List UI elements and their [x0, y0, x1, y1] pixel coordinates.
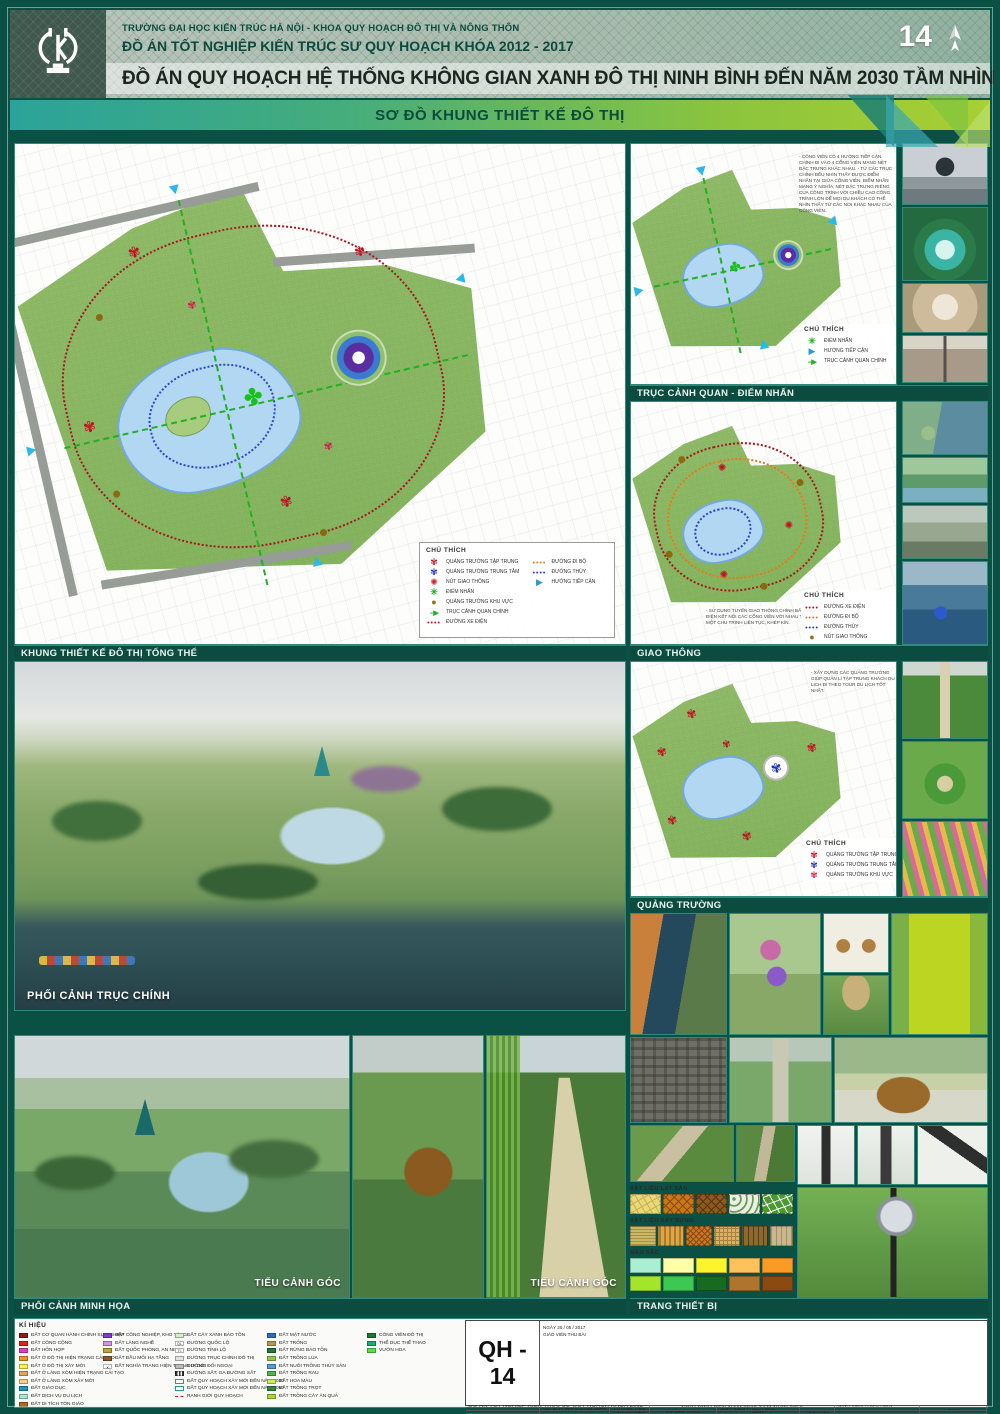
symbol-swatch [367, 1348, 376, 1353]
photo-lantern-lamp [797, 1125, 855, 1185]
landmark-cone [314, 746, 330, 776]
legend-icon [426, 578, 442, 587]
symbol-swatch [103, 1333, 112, 1338]
legend-icon [806, 861, 822, 870]
header-band: TRƯỜNG ĐẠI HỌC KIẾN TRÚC HÀ NỘI - KHOA Q… [10, 10, 990, 98]
legend-item: TRỤC CẢNH QUAN CHÍNH [804, 356, 892, 366]
traffic-map: ✺ ✺ ✺ - SỬ DỤNG TUYẾN GIAO THÔNG CHÍNH B… [630, 401, 897, 645]
legend-item: ĐƯỜNG THỦY [531, 567, 608, 577]
symbol-swatch [267, 1379, 276, 1384]
course-line: ĐỒ ÁN TỐT NGHIỆP KIẾN TRÚC SƯ QUY HOẠCH … [122, 38, 574, 54]
symbol-item: ĐẤT HOA MÀU [267, 1378, 346, 1386]
symbol-swatch [267, 1333, 276, 1338]
junction-marker: ✺ [717, 463, 727, 475]
legend-icon [426, 588, 442, 597]
photo-lamp-path [729, 1037, 832, 1123]
color-swatch [762, 1276, 793, 1291]
section-bar-equipment: TRANG THIẾT BỊ [630, 1298, 988, 1314]
section-label: PHỐI CẢNH MINH HỌA [21, 1301, 130, 1312]
building-label: VẬT LIỆU XÂY DỰNG [630, 1218, 694, 1224]
symbol-swatch [175, 1348, 184, 1353]
legend-item: QUẢNG TRƯỜNG TRUNG TÂM [806, 860, 894, 870]
legend-icon [804, 337, 820, 346]
building-swatch-4 [714, 1226, 740, 1246]
perspective-label: PHỐI CẢNH TRỤC CHÍNH [27, 990, 170, 1002]
photo-exercise-equipment [823, 913, 889, 973]
legend-icon [806, 851, 822, 860]
photo-plaza-fountain [902, 283, 988, 333]
master-plan-map: ✤ ✾ ✾ ✾ ✾ ✾ ✾ CHÚ THÍCH QUẢNG TRƯỜNG TẬP… [14, 143, 626, 645]
corner-scene-walkway: TIỂU CẢNH GÓC [486, 1035, 626, 1298]
color-swatch [696, 1258, 727, 1273]
master-legend: CHÚ THÍCH QUẢNG TRƯỜNG TẬP TRUNGQUẢNG TR… [419, 542, 615, 638]
legend-item: ĐIỂM NHẤN [426, 587, 525, 597]
color-swatch [762, 1258, 793, 1273]
symbol-item: THỂ DỤC THỂ THAO [367, 1340, 426, 1348]
legend-item: HƯỚNG TIẾP CẬN [804, 346, 892, 356]
symbol-swatch [103, 1364, 112, 1369]
tree-cluster [52, 801, 142, 841]
legend-icon [426, 568, 442, 577]
square-marker: ✾ [741, 829, 753, 843]
legend-item: ĐƯỜNG THỦY [804, 622, 892, 632]
photo-statue [902, 143, 988, 205]
illustration-render: TIỂU CẢNH GÓC [14, 1035, 350, 1298]
legend-icon [531, 558, 547, 567]
sheet-number: 14 [899, 20, 932, 54]
building-swatch-3 [686, 1226, 712, 1246]
tree-cluster [229, 1140, 319, 1178]
color-swatch [630, 1258, 661, 1273]
section-label: TRỤC CẢNH QUAN - ĐIỂM NHẤN [637, 388, 794, 399]
section-bar-illustration: PHỐI CẢNH MINH HỌA [14, 1298, 626, 1314]
photo-stone-house [630, 1037, 727, 1123]
section-bar-axis: TRỤC CẢNH QUAN - ĐIỂM NHẤN [630, 385, 988, 400]
axis-note: - CÔNG VIÊN CÓ 4 HƯỚNG TIẾP CẬN CHÍNH ĐI… [799, 154, 893, 214]
photo-bollard-lamp [857, 1125, 915, 1185]
building-swatch-6 [770, 1226, 793, 1246]
photo-garden-path-1 [630, 1125, 734, 1182]
symbol-item: VƯỜN HOA [367, 1347, 426, 1355]
photo-boulevard [902, 661, 988, 739]
photo-gazebo [823, 975, 889, 1035]
squares-legend: CHÚ THÍCH QUẢNG TRƯỜNG TẬP TRUNGQUẢNG TR… [803, 838, 897, 882]
symbol-swatch [367, 1341, 376, 1346]
paving-swatch-5 [762, 1194, 793, 1214]
color-swatch [663, 1258, 694, 1273]
titleblock-date-cell: NGÀY 20 / 05 / 2017 GIÁO VIÊN THU BÀI [540, 1321, 610, 1405]
symbols-title: KÍ HIỆU [19, 1322, 46, 1329]
photo-arm-lamp [917, 1125, 988, 1185]
legend-item: NÚT GIAO THÔNG [804, 632, 892, 642]
symbol-swatch [175, 1379, 184, 1384]
section-bar-squares: QUẢNG TRƯỜNG [630, 897, 988, 912]
junction-marker: ✺ [719, 570, 729, 582]
symbol-item: CÔNG VIÊN ĐÔ THỊ [367, 1332, 426, 1340]
banner: SƠ ĐỒ KHUNG THIẾT KẾ ĐÔ THỊ [10, 100, 990, 130]
axis-map: ✤ - CÔNG VIÊN CÓ 4 HƯỚNG TIẾP CẬN CHÍNH … [630, 143, 897, 385]
photo-flower-parterre [902, 821, 988, 897]
square-marker: ✾ [806, 741, 818, 755]
legend-col-left: QUẢNG TRƯỜNG TẬP TRUNGQUẢNG TRƯỜNG TRUNG… [426, 557, 525, 627]
legend-item: HƯỚNG TIẾP CẬN [531, 577, 608, 587]
photo-canal-benches [630, 913, 727, 1035]
squares-map: ✾ ✾ ✾ ✾ ✾ ✾ ✾ - XÂY DỰNG CÁC QUẢNG TRƯỜN… [630, 661, 897, 897]
square-marker: ✾ [685, 707, 697, 721]
paving-swatch-3 [696, 1194, 727, 1214]
access-arrow [311, 556, 323, 567]
section-label: QUẢNG TRƯỜNG [637, 900, 722, 911]
symbol-swatch [175, 1364, 184, 1369]
corner-label-right: TIỂU CẢNH GÓC [531, 1278, 618, 1289]
symbol-swatch [267, 1394, 276, 1399]
flower-trees [351, 766, 421, 792]
section-label: KHUNG THIẾT KẾ ĐÔ THỊ TỔNG THỂ [21, 648, 197, 659]
photo-garden-path-2 [736, 1125, 795, 1182]
access-arrow [633, 285, 644, 297]
symbol-swatch [267, 1348, 276, 1353]
section-label: TRANG THIẾT BỊ [637, 1301, 717, 1312]
symbol-swatch [19, 1386, 28, 1391]
symbol-swatch [175, 1371, 184, 1376]
photo-roundabout [902, 741, 988, 819]
square-marker: ✾ [666, 813, 678, 827]
sheet-code: QH - 14 [466, 1321, 540, 1405]
section-bar-traffic: GIAO THÔNG [630, 645, 988, 660]
legend-icon [531, 568, 547, 577]
access-arrow [826, 216, 837, 228]
corner-scene-dome [352, 1035, 484, 1298]
color-swatch [696, 1276, 727, 1291]
photo-electric-carts [902, 505, 988, 559]
project-title: ĐỒ ÁN QUY HOẠCH HỆ THỐNG KHÔNG GIAN XANH… [122, 68, 990, 90]
legend-icon [426, 608, 442, 617]
photo-obelisk-square [902, 335, 988, 383]
legend-item: ĐƯỜNG XE ĐIỆN [426, 617, 525, 627]
section-bar-master: KHUNG THIẾT KẾ ĐÔ THỊ TỔNG THỂ [14, 645, 626, 660]
title-block: TRƯỜNG ĐẠI HỌC KIẾN TRÚC HÀ NỘI - KHOA Q… [465, 1320, 988, 1406]
symbol-swatch [175, 1396, 184, 1398]
symbol-swatch [175, 1356, 184, 1361]
legend-icon [804, 347, 820, 356]
university-logo [10, 10, 106, 98]
traffic-legend: CHÚ THÍCH ĐƯỜNG XE ĐIỆNĐƯỜNG ĐI BỘĐƯỜNG … [801, 590, 895, 644]
photo-log-bench [834, 1037, 988, 1123]
legend-item: QUẢNG TRƯỜNG KHU VỰC [806, 870, 894, 880]
legend-icon [426, 618, 442, 627]
legend-item: QUẢNG TRƯỜNG KHU VỰC [426, 597, 525, 607]
school-line: TRƯỜNG ĐẠI HỌC KIẾN TRÚC HÀ NỘI - KHOA Q… [122, 23, 519, 34]
access-arrow [454, 273, 465, 285]
symbol-swatch [267, 1364, 276, 1369]
legend-icon [804, 613, 820, 622]
legend-item: QUẢNG TRƯỜNG TẬP TRUNG [806, 850, 894, 860]
tree-cluster [35, 1156, 115, 1190]
symbols-col-5: CÔNG VIÊN ĐÔ THỊTHỂ DỤC THỂ THAOVƯỜN HOA [367, 1332, 426, 1355]
legend-item: QUẢNG TRƯỜNG TẬP TRUNG [426, 557, 525, 567]
square-marker: ✾ [721, 739, 731, 751]
symbol-item: ĐẤT TRỒNG RAU [267, 1370, 346, 1378]
photo-stepping-stones [902, 401, 988, 455]
symbol-swatch [367, 1333, 376, 1338]
symbols-col-4: ĐẤT MẶT NƯỚCĐẤT TRỐNGĐẤT RỪNG BẢO TỒNĐẤT… [267, 1332, 346, 1400]
symbol-item: ĐẤT TRỒNG CÂY ĂN QUẢ [267, 1393, 346, 1401]
square-marker: ✾ [353, 244, 367, 259]
color-swatch [729, 1276, 760, 1291]
legend-icon [804, 603, 820, 612]
paving-swatch-2 [663, 1194, 694, 1214]
cone-structure [135, 1099, 155, 1135]
legend-item: ĐƯỜNG ĐI BỘ [531, 557, 608, 567]
symbol-swatch [267, 1386, 276, 1391]
symbol-swatch [19, 1341, 28, 1346]
legend-col-right: ĐƯỜNG ĐI BỘĐƯỜNG THỦYHƯỚNG TIẾP CẬN [531, 557, 608, 627]
paving-swatch-1 [630, 1194, 661, 1214]
photo-boats [902, 561, 988, 645]
symbol-item: ĐẤT DỊCH VỤ DU LỊCH [19, 1393, 124, 1401]
symbol-item: ĐẤT DI TÍCH TÔN GIÁO [19, 1400, 124, 1408]
banner-title: SƠ ĐỒ KHUNG THIẾT KẾ ĐÔ THỊ [375, 107, 625, 124]
north-arrow-icon [946, 24, 964, 59]
symbol-item: ĐẤT MẶT NƯỚC [267, 1332, 346, 1340]
symbol-swatch [103, 1356, 112, 1361]
symbol-item: ĐẤT Ở LÀNG XÓM XÂY MỚI [19, 1378, 124, 1386]
main-perspective-render: PHỐI CẢNH TRỤC CHÍNH [14, 661, 626, 1011]
symbol-swatch [267, 1371, 276, 1376]
squares-note: - XÂY DỰNG CÁC QUẢNG TRƯỜNG GIÚP QUẢN LÍ… [811, 670, 895, 694]
legend-item: ĐƯỜNG XE ĐIỆN [804, 602, 892, 612]
corner-label-left: TIỂU CẢNH GÓC [255, 1278, 342, 1289]
color-swatch [630, 1276, 661, 1291]
symbol-item: ĐẤT TRỐNG [267, 1340, 346, 1348]
legend-icon [426, 598, 442, 607]
legend-icon [804, 623, 820, 632]
building-swatch-2 [658, 1226, 684, 1246]
access-arrow [696, 166, 708, 177]
square-marker: ✾ [656, 745, 668, 759]
symbol-swatch [103, 1348, 112, 1353]
legend-item: TRỤC CẢNH QUAN CHÍNH [426, 607, 525, 617]
symbol-item: ĐẤT TRỒNG LÚA [267, 1355, 346, 1363]
symbol-swatch [175, 1333, 184, 1338]
legend-item: ĐIỂM NHẤN [804, 336, 892, 346]
legend-icon [426, 558, 442, 567]
bamboo-strip [487, 1036, 520, 1297]
symbol-swatch [175, 1386, 184, 1391]
axis-legend: CHÚ THÍCH ĐIỂM NHẤNHƯỚNG TIẾP CẬNTRỤC CẢ… [801, 324, 895, 368]
legend-title: CHÚ THÍCH [426, 547, 608, 554]
access-arrow [169, 184, 181, 195]
symbol-swatch [19, 1394, 28, 1399]
symbol-swatch [19, 1364, 28, 1369]
symbol-item: ĐẤT RỪNG BẢO TỒN [267, 1347, 346, 1355]
symbol-swatch [19, 1379, 28, 1384]
symbol-swatch [103, 1341, 112, 1346]
legend-icon [804, 633, 820, 642]
photo-solar-lamp [797, 1187, 988, 1298]
symbol-swatch [19, 1333, 28, 1338]
symbol-swatch [267, 1341, 276, 1346]
symbol-swatch [175, 1341, 184, 1346]
tree-cluster [442, 787, 552, 831]
collector-line: GIÁO VIÊN THU BÀI [543, 1332, 586, 1337]
legend-items: QUẢNG TRƯỜNG TẬP TRUNGQUẢNG TRƯỜNG TRUNG… [806, 850, 894, 880]
color-swatch [729, 1258, 760, 1273]
symbol-item: ĐẤT TRỒNG TRỌT [267, 1385, 346, 1393]
boat-pier [39, 956, 135, 965]
legend-item: NÚT GIAO THÔNG [426, 577, 525, 587]
symbol-swatch [19, 1402, 28, 1407]
symbol-item: ĐẤT GIÁO DỤC [19, 1385, 124, 1393]
symbol-swatch [19, 1371, 28, 1376]
access-arrow [757, 338, 769, 349]
legend-icon [806, 871, 822, 880]
symbol-item: ĐẤT Ở LÀNG XÓM HIỆN TRẠNG CẢI TẠO [19, 1370, 124, 1378]
symbol-item: ĐẤT NUÔI TRỒNG THỦY SẢN [267, 1362, 346, 1370]
legend-icon [531, 578, 547, 587]
photo-water-feature [902, 457, 988, 503]
photo-fountain [902, 207, 988, 281]
photo-flower-tower [729, 913, 821, 1035]
symbol-swatch [267, 1356, 276, 1361]
legend-icon [804, 357, 820, 366]
poster-page: TRƯỜNG ĐẠI HỌC KIẾN TRÚC HÀ NỘI - KHOA Q… [0, 0, 1000, 1414]
date-line: NGÀY 20 / 05 / 2017 [543, 1325, 585, 1330]
section-label: GIAO THÔNG [637, 648, 701, 659]
building-swatch-5 [742, 1226, 768, 1246]
symbol-swatch [19, 1356, 28, 1361]
access-arrow [26, 445, 37, 457]
symbol-swatch [19, 1348, 28, 1353]
colors-label: MÀU SẮC [630, 1250, 659, 1256]
tree-cluster [198, 864, 318, 900]
junction-marker: ✺ [784, 521, 794, 533]
legend-items: ĐIỂM NHẤNHƯỚNG TIẾP CẬNTRỤC CẢNH QUAN CH… [804, 336, 892, 366]
university-emblem-icon [32, 22, 84, 86]
legend-items: ĐƯỜNG XE ĐIỆNĐƯỜNG ĐI BỘĐƯỜNG THỦYNÚT GI… [804, 602, 892, 642]
building-swatch-1 [630, 1226, 656, 1246]
legend-item: ĐƯỜNG ĐI BỘ [804, 612, 892, 622]
photo-green-pavilion [891, 913, 988, 1035]
paving-label: VẬT LIỆU LÁT SÀN [630, 1186, 688, 1192]
square-marker: ✾ [770, 761, 783, 776]
color-swatch [663, 1276, 694, 1291]
paving-swatch-4 [729, 1194, 760, 1214]
legend-item: QUẢNG TRƯỜNG TRUNG TÂM [426, 567, 525, 577]
